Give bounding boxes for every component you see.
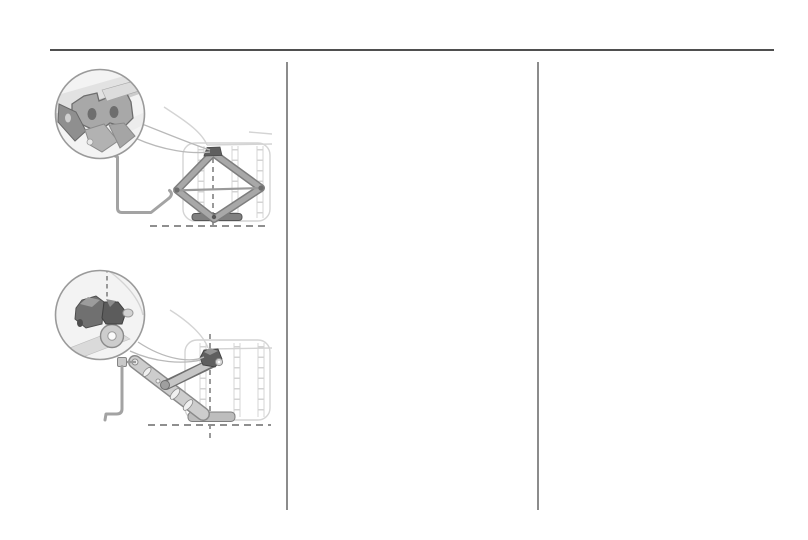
magnifier-inset [54,70,145,159]
crank-jack-drawing [52,262,272,452]
wheel-wrench-hook [113,155,171,213]
callout-leader-lines [135,124,210,153]
column-divider-1 [286,62,288,510]
header-rule [50,49,774,51]
figure-scissor-jack [52,62,272,240]
magnifier-inset [54,268,145,368]
scissor-jack [173,147,264,221]
jack-screw [173,188,261,191]
figure-crank-jack [52,262,272,452]
column-divider-2 [537,62,539,510]
car-body-outline [170,310,272,349]
manual-page: { "window": { "width_px": 808, "height_p… [0,0,808,540]
scissor-jack-drawing [52,62,272,240]
